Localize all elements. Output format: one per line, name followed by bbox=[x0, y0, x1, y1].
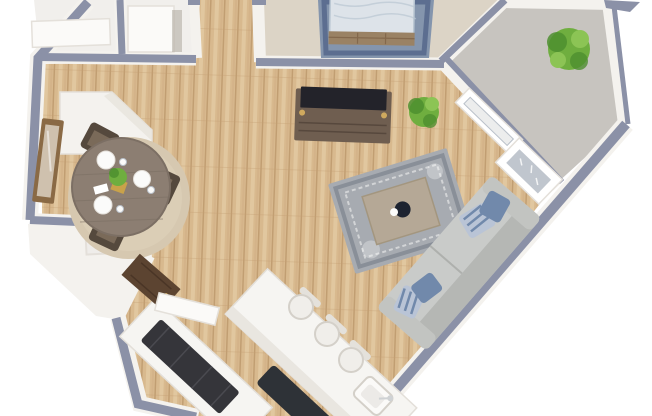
washer-shadow bbox=[172, 10, 182, 52]
plant-foliage-dark2 bbox=[423, 114, 437, 128]
washer-body bbox=[128, 6, 174, 52]
plant-foliage-dark bbox=[547, 32, 567, 52]
vanity-counter bbox=[32, 19, 111, 48]
balcony-plant bbox=[547, 28, 590, 70]
wall-top-bathroom-bottom bbox=[38, 57, 196, 59]
plant-foliage-dark2 bbox=[570, 52, 588, 70]
washer-unit bbox=[128, 6, 182, 52]
wine-glass bbox=[120, 159, 127, 166]
plant-foliage-dark bbox=[408, 98, 424, 114]
plant-foliage-light bbox=[425, 97, 439, 111]
wall-top-cap-hall bbox=[252, 0, 266, 5]
tv-console bbox=[294, 86, 392, 143]
wall-top-cap-laundry bbox=[188, 0, 200, 5]
wine-glass bbox=[148, 187, 155, 194]
wall-face-hall-bedroom-divider bbox=[258, 0, 260, 62]
bedroom-furniture bbox=[318, 0, 434, 58]
plant-foliage-light2 bbox=[550, 52, 566, 68]
floor-plan-render bbox=[0, 0, 652, 416]
wall-face-balcony-top bbox=[504, 3, 612, 5]
centerpiece-plant-dark bbox=[109, 168, 119, 178]
wall-face-laundry-hall-divider bbox=[194, 0, 197, 58]
plate bbox=[94, 196, 112, 214]
wall-top-bedroom-bottom bbox=[256, 62, 444, 64]
wine-glass bbox=[117, 206, 124, 213]
wall-top-bath-divider bbox=[120, 0, 122, 54]
bathroom-vanity bbox=[32, 19, 111, 48]
plant-foliage-light bbox=[571, 30, 589, 48]
plate bbox=[134, 171, 151, 188]
floorplan-3d-svg bbox=[0, 0, 652, 416]
tv-screen bbox=[300, 87, 387, 111]
bed bbox=[328, 0, 416, 46]
plate bbox=[97, 151, 115, 169]
